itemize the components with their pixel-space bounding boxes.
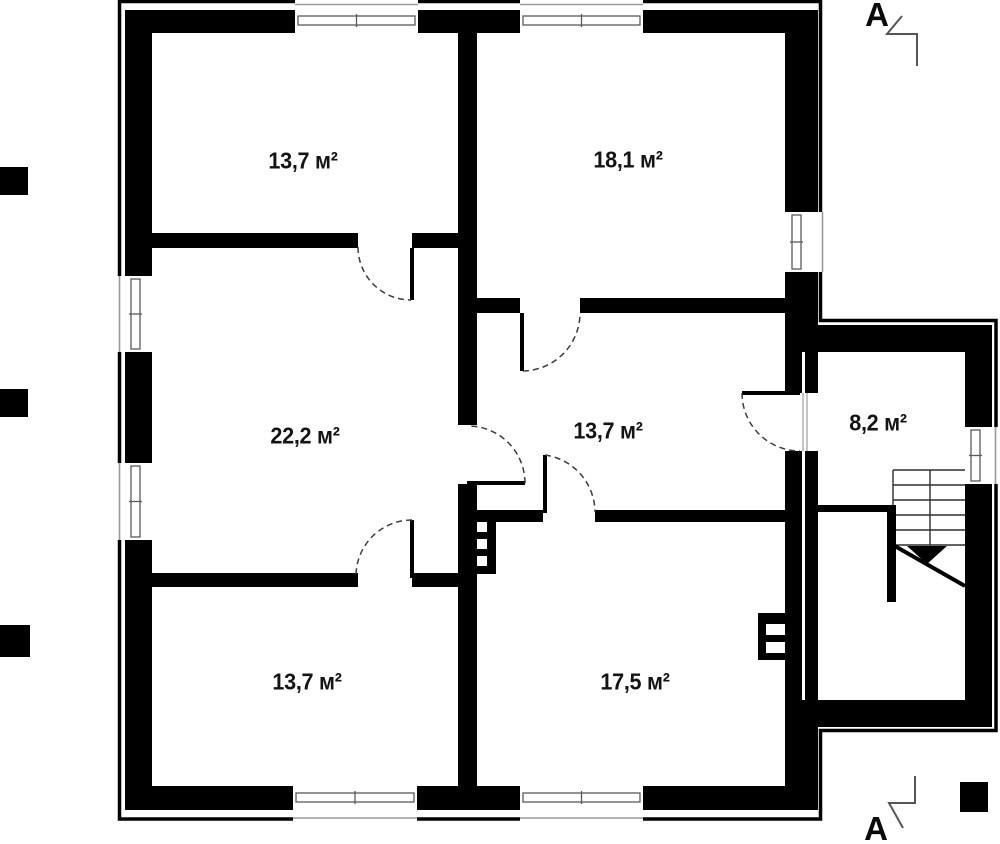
room-label-hallway: 13,7 м² [573, 418, 642, 445]
door-swing-arcs [356, 247, 800, 576]
wall-break-marker-1 [0, 167, 28, 195]
staircase [815, 470, 965, 602]
interior-walls [152, 33, 785, 786]
stair-wall-stub [887, 505, 896, 602]
vent-shaft-1 [472, 514, 496, 574]
floor-plan-page: 13,7 м² 18,1 м² 22,2 м² 13,7 м² 8,2 м² 1… [0, 0, 1000, 844]
room-label-top-left: 13,7 м² [268, 148, 337, 175]
wall-break-marker-2 [0, 389, 28, 417]
vent-shaft-2 [758, 613, 786, 660]
door-leaf-top-left-room [410, 248, 414, 300]
section-marker-letter-bottom: A [858, 812, 894, 844]
door-leaf-living-room [467, 481, 525, 485]
room-label-living: 22,2 м² [270, 423, 339, 450]
room-label-bottom-right: 17,5 м² [600, 669, 669, 696]
wall-break-marker-4 [960, 782, 988, 812]
room-label-stair-hall: 8,2 м² [849, 410, 907, 437]
room-label-top-right: 18,1 м² [593, 147, 662, 174]
section-marker-letter-top: A [859, 0, 895, 31]
door-leaf-bottom-right-room [543, 455, 547, 513]
wall-break-marker-3 [0, 625, 30, 657]
door-leaf-stair-hall [742, 391, 800, 395]
stair-rail-wall [815, 505, 887, 512]
door-leaf-top-right-room [520, 313, 524, 371]
room-label-bottom-left: 13,7 м² [272, 669, 341, 696]
door-leaf-bottom-left-room [410, 520, 414, 578]
